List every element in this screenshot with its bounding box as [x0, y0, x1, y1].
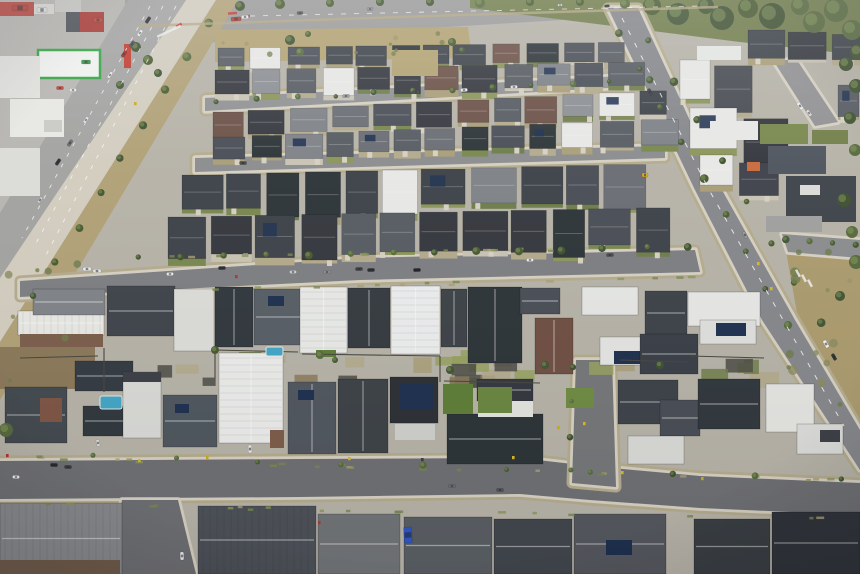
aerial-photo-suburb [0, 0, 860, 574]
aerial-photo-svg [0, 0, 860, 574]
vignette [0, 0, 860, 574]
